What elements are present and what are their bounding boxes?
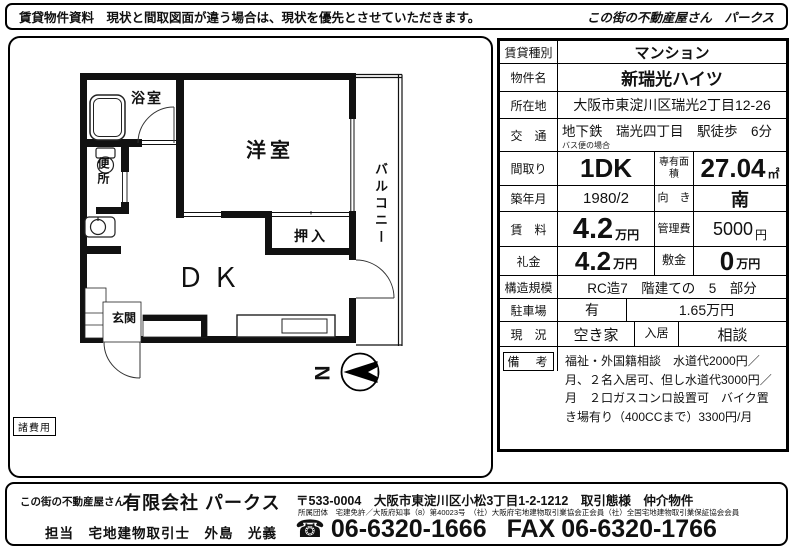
deposit-label: 敷金 [654, 247, 694, 275]
maintenance-number: 5000 [713, 219, 753, 240]
footer-bar: この街の不動産屋さん 有限会社 パークス 〒533-0004 大阪市東淀川区小松… [5, 482, 788, 546]
header-brand: この街の不動産屋さん パークス [587, 7, 774, 26]
move-in-label: 入居 [634, 322, 679, 346]
property-info-table: 賃貸種別 マンション 物件名 新瑞光ハイツ 所在地 大阪市東淀川区瑞光2丁目12… [497, 38, 789, 452]
room-label-toilet: 便所 [95, 157, 112, 187]
footer-brand-small: この街の不動産屋さん [20, 494, 125, 509]
move-in-value: 相談 [679, 322, 786, 346]
row-label: 構造規模 [500, 276, 558, 298]
access-value: 地下鉄 瑞光四丁目 駅徒歩 6分 [562, 120, 786, 140]
row-label: 礼金 [500, 247, 558, 275]
layout-value: 1DK [558, 152, 654, 185]
room-label-entrance: 玄関 [106, 309, 142, 326]
parking-fee-value: 1.65万円 [626, 299, 786, 321]
built-value: 1980/2 [558, 186, 654, 211]
table-row-structure: 構造規模 RC造7 階建ての 5 部分 [500, 276, 786, 299]
window-right-wall [351, 119, 354, 211]
row-label: 築年月 [500, 186, 558, 211]
structure-value: RC造7 階建ての 5 部分 [558, 276, 786, 298]
property-type-value: マンション [558, 41, 786, 63]
remarks-value: 福祉・外国籍相談 水道代2000円／月、２名入居可、但し水道代3000円／月 ２… [558, 347, 786, 426]
kitchen-counter [237, 315, 335, 337]
rental-property-sheet: 賃貸物件資料 現状と間取図面が違う場合は、現状を優先とさせていただきます。 この… [0, 0, 793, 550]
bathtub-icon [90, 95, 125, 140]
status-value: 空き家 [558, 322, 634, 346]
room-label-western: 洋室 [202, 134, 338, 163]
room-label-dk: ＤＫ [150, 256, 274, 295]
key-money-number: 4.2 [575, 247, 611, 275]
row-label: 備 考 [500, 347, 558, 371]
costs-note-box: 諸費用 [13, 417, 56, 436]
table-row-rent: 賃 料 4.2 万円 管理費 5000 円 [500, 212, 786, 247]
table-row-layout: 間取り 1DK 専有面積 27.04 ㎡ [500, 152, 786, 186]
rent-number: 4.2 [573, 213, 613, 246]
area-number: 27.04 [700, 153, 765, 184]
deposit-value: 0 万円 [694, 247, 786, 275]
table-row-status: 現 況 空き家 入居 相談 [500, 322, 786, 347]
fax-label: FAX [507, 515, 556, 544]
key-money-value: 4.2 万円 [558, 247, 654, 275]
bath-door-arc [138, 107, 174, 143]
access-note: バス便の場合 [562, 140, 786, 151]
table-row-built: 築年月 1980/2 向 き 南 [500, 186, 786, 212]
row-label: 現 況 [500, 322, 558, 346]
balcony-door-arc [356, 260, 394, 298]
row-label: 間取り [500, 152, 558, 185]
header-bar: 賃貸物件資料 現状と間取図面が違う場合は、現状を優先とさせていただきます。 この… [5, 3, 788, 30]
deposit-number: 0 [720, 247, 734, 275]
facing-value: 南 [694, 186, 786, 211]
facing-label: 向 き [654, 186, 694, 211]
compass-icon [342, 354, 379, 391]
maintenance-unit: 円 [755, 226, 767, 246]
table-row-type: 賃貸種別 マンション [500, 41, 786, 64]
entrance-counter [143, 315, 207, 337]
table-row-name: 物件名 新瑞光ハイツ [500, 64, 786, 92]
maintenance-label: 管理費 [654, 212, 694, 246]
phone-number: 06-6320-1666 [331, 515, 487, 544]
row-label: 交 通 [500, 119, 558, 151]
floorplan-panel: 洋室 ＤＫ 浴室 便所 押入 バルコニー 玄関 諸費用 N [8, 36, 493, 478]
property-address-value: 大阪市東淀川区瑞光2丁目12-26 [558, 92, 786, 118]
property-name-value: 新瑞光ハイツ [558, 64, 786, 91]
fax-number: 06-6320-1766 [561, 515, 717, 544]
footer-company-name: 有限会社 パークス [123, 489, 280, 515]
rent-unit: 万円 [615, 226, 639, 246]
room-label-closet: 押入 [272, 226, 350, 246]
header-notice: 賃貸物件資料 現状と間取図面が違う場合は、現状を優先とさせていただきます。 [19, 7, 480, 26]
parking-value: 有 [558, 299, 626, 321]
table-row-access: 交 通 地下鉄 瑞光四丁目 駅徒歩 6分 バス便の場合 [500, 119, 786, 152]
remarks-label-box: 備 考 [503, 352, 553, 371]
footer-contacts: ☎ 06-6320-1666 FAX 06-6320-1766 [295, 515, 717, 544]
access-cell: 地下鉄 瑞光四丁目 駅徒歩 6分 バス便の場合 [558, 119, 786, 151]
washbasin-icon [85, 217, 115, 237]
area-value: 27.04 ㎡ [694, 152, 786, 185]
entrance-door-arc [104, 342, 140, 378]
table-row-remarks: 備 考 福祉・外国籍相談 水道代2000円／月、２名入居可、但し水道代3000円… [500, 347, 786, 449]
row-label: 賃貸種別 [500, 41, 558, 63]
area-label: 専有面積 [654, 152, 694, 185]
deposit-unit: 万円 [736, 255, 760, 275]
rent-value: 4.2 万円 [558, 212, 654, 246]
footer-staff: 担当 宅地建物取引士 外島 光義 [45, 522, 277, 542]
maintenance-value: 5000 円 [694, 212, 786, 246]
table-row-address: 所在地 大阪市東淀川区瑞光2丁目12-26 [500, 92, 786, 119]
room-label-balcony: バルコニー [371, 162, 390, 247]
area-unit: ㎡ [768, 165, 780, 185]
key-money-unit: 万円 [613, 255, 637, 275]
row-label: 物件名 [500, 64, 558, 91]
row-label: 駐車場 [500, 299, 558, 321]
row-label: 賃 料 [500, 212, 558, 246]
phone-icon: ☎ [295, 515, 325, 544]
room-label-bath: 浴室 [131, 88, 163, 108]
row-label: 所在地 [500, 92, 558, 118]
compass-north-label: N [312, 365, 336, 380]
table-row-key-money: 礼金 4.2 万円 敷金 0 万円 [500, 247, 786, 276]
table-row-parking: 駐車場 有 1.65万円 [500, 299, 786, 322]
